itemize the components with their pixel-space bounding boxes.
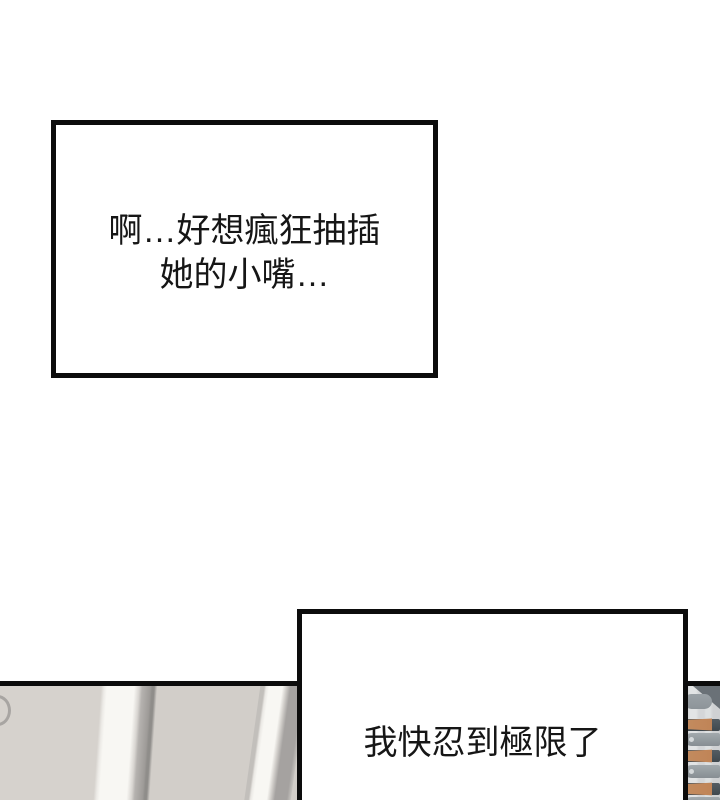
caption-line: 我快忍到極限了 [292,721,673,765]
caption-line: 她的小嘴… [109,253,381,297]
knife-gray-icon [684,733,720,746]
door-handle-arc [0,695,11,726]
knife-gray-icon [684,765,720,778]
caption-text-top: 啊…好想瘋狂抽插 她的小嘴… [109,209,381,297]
knife-hole-icon [689,737,694,742]
knife-hole-icon [689,769,694,774]
caption-box-bottom: 我快忍到極限了 [297,609,688,800]
caption-text-bottom: 我快忍到極限了 [292,721,673,765]
caption-line: 啊…好想瘋狂抽插 [109,209,381,253]
comic-page: 啊…好想瘋狂抽插 她的小嘴… [0,0,720,800]
knife-gray-icon [684,694,712,709]
caption-box-top: 啊…好想瘋狂抽插 她的小嘴… [51,120,438,378]
